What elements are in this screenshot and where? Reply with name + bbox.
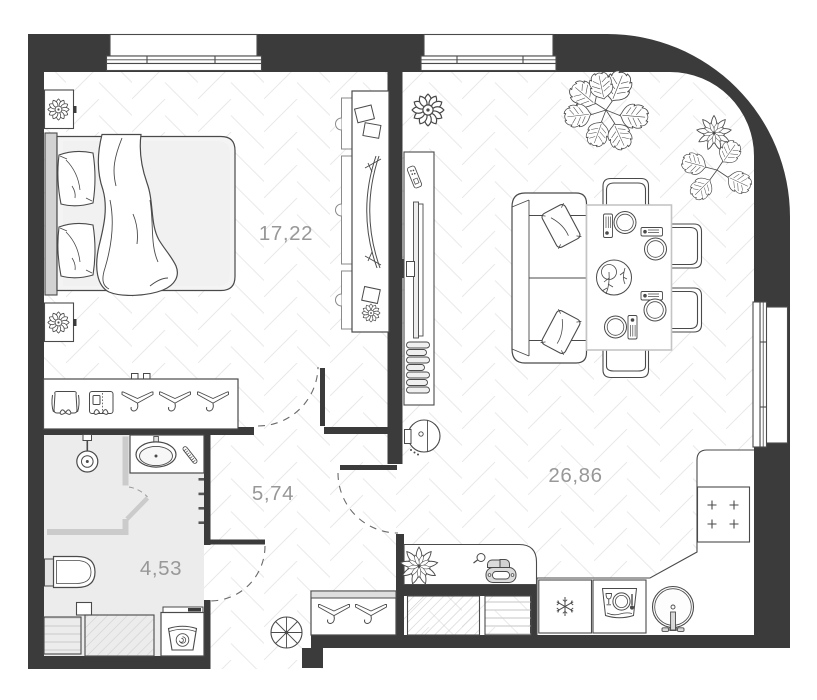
- svg-text:26,86: 26,86: [548, 464, 602, 487]
- svg-text:4,53: 4,53: [140, 557, 182, 580]
- svg-text:17,22: 17,22: [259, 222, 313, 245]
- svg-text:5,74: 5,74: [252, 482, 294, 505]
